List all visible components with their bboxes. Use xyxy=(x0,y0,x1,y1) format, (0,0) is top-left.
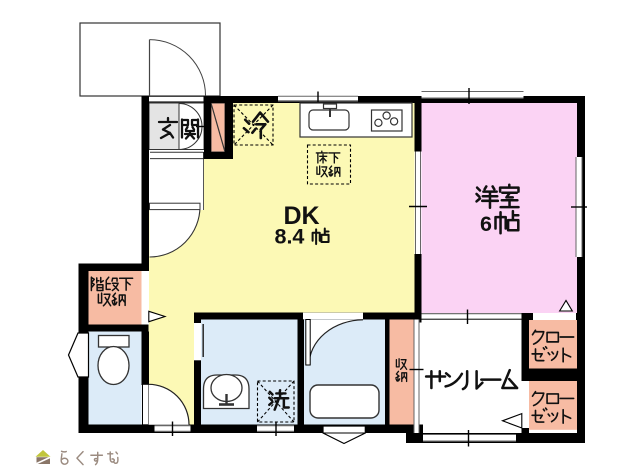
svg-text:8.4: 8.4 xyxy=(275,225,305,249)
svg-text:6: 6 xyxy=(480,212,492,236)
